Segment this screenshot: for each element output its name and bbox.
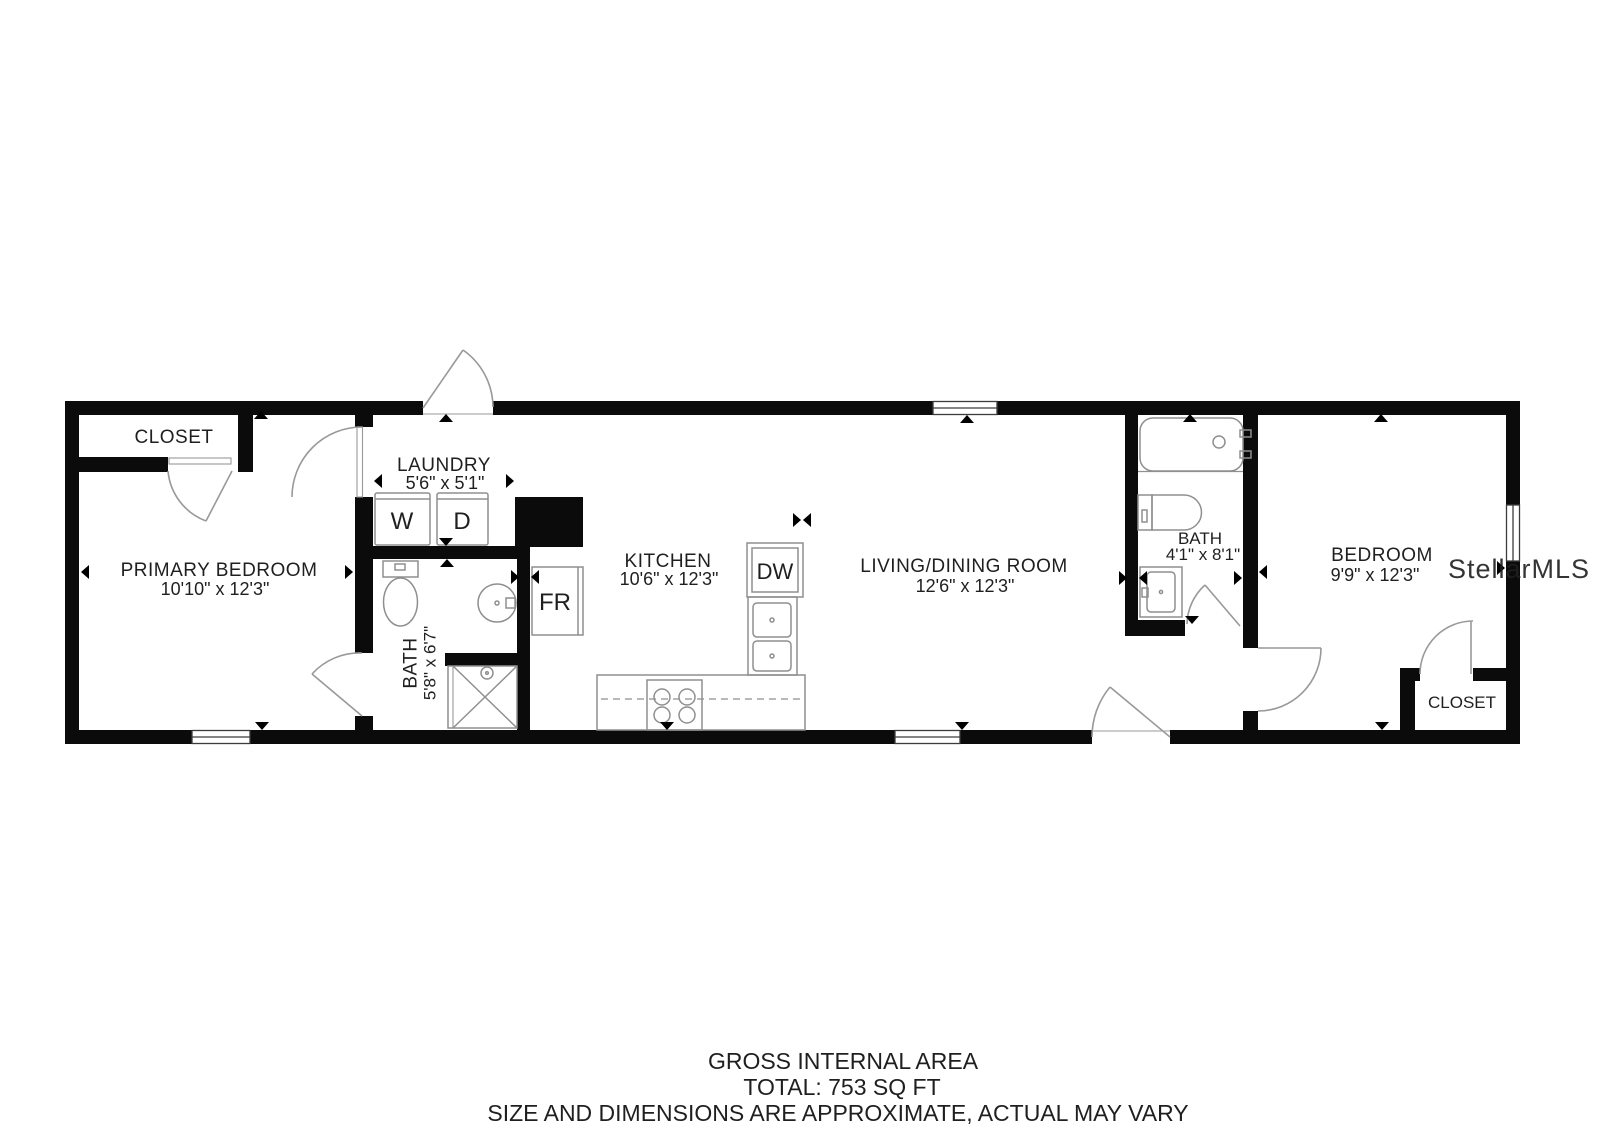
laundry-bath-wall [355, 546, 530, 559]
footer-gross-area: GROSS INTERNAL AREA [708, 1048, 979, 1074]
fridge-label: FR [539, 589, 571, 616]
wall-top-mid [493, 401, 933, 415]
wall-d-lower [1243, 711, 1258, 744]
shower-top-wall [445, 653, 530, 666]
closet-primary-label: CLOSET [134, 427, 213, 448]
bedroom-label: BEDROOM [1331, 545, 1433, 566]
footer-total: TOTAL: 753 SQ FT [743, 1074, 940, 1100]
footer-disclaimer: SIZE AND DIMENSIONS ARE APPROXIMATE, ACT… [487, 1100, 1188, 1126]
bedroom-dims: 9'9" x 12'3" [1331, 565, 1420, 585]
living-dining-dims: 12'6" x 12'3" [916, 576, 1015, 596]
wall-bottom-2 [250, 730, 895, 744]
closet-p-right-wall [238, 412, 253, 472]
floorplan-page: CLOSET PRIMARY BEDROOM 10'10" x 12'3" LA… [0, 0, 1600, 1130]
wall-bottom-3 [960, 730, 1092, 744]
wall-top-right [997, 401, 1520, 415]
bath-right-dims: 4'1" x 8'1" [1166, 545, 1240, 564]
wall-a-mid [355, 497, 373, 653]
closet-bedroom-label: CLOSET [1428, 693, 1496, 712]
closet-b-top-stub-left [1400, 668, 1420, 681]
wall-c [1125, 412, 1138, 623]
floorplan-drawing: CLOSET PRIMARY BEDROOM 10'10" x 12'3" LA… [0, 0, 1600, 1130]
wall-right-upper [1506, 401, 1520, 505]
bath-left-dims: 5'8" x 6'7" [421, 626, 440, 700]
washer-label: W [391, 508, 414, 535]
stellar-mls-watermark: StellarMLS [1448, 554, 1590, 584]
window-bottom-primary [192, 731, 250, 744]
closet-b-top-stub-right [1473, 668, 1506, 681]
wall-bottom-4 [1170, 730, 1520, 744]
window-right-bedroom [1507, 505, 1520, 561]
wall-a-bottom [355, 716, 373, 744]
wall-d-upper [1243, 401, 1258, 648]
wall-b [517, 546, 530, 744]
bath-r-bottom-wall [1125, 620, 1185, 636]
wall-bottom-1 [65, 730, 192, 744]
window-top-living [933, 402, 997, 415]
window-bottom-living [895, 731, 960, 744]
dishwasher-label: DW [757, 559, 794, 584]
primary-bedroom-dims: 10'10" x 12'3" [161, 579, 270, 599]
primary-bedroom-label: PRIMARY BEDROOM [121, 560, 318, 581]
kitchen-dims: 10'6" x 12'3" [620, 569, 719, 589]
wall-right-lower [1506, 561, 1520, 744]
dryer-label: D [453, 508, 470, 535]
closet-p-bottom-wall [65, 457, 168, 472]
laundry-dims: 5'6" x 5'1" [406, 473, 485, 493]
wall-left [65, 401, 79, 744]
wall-a-top [355, 401, 373, 427]
living-dining-label: LIVING/DINING ROOM [860, 556, 1067, 577]
utility-block [515, 497, 583, 547]
bath-left-label: BATH [401, 637, 422, 688]
